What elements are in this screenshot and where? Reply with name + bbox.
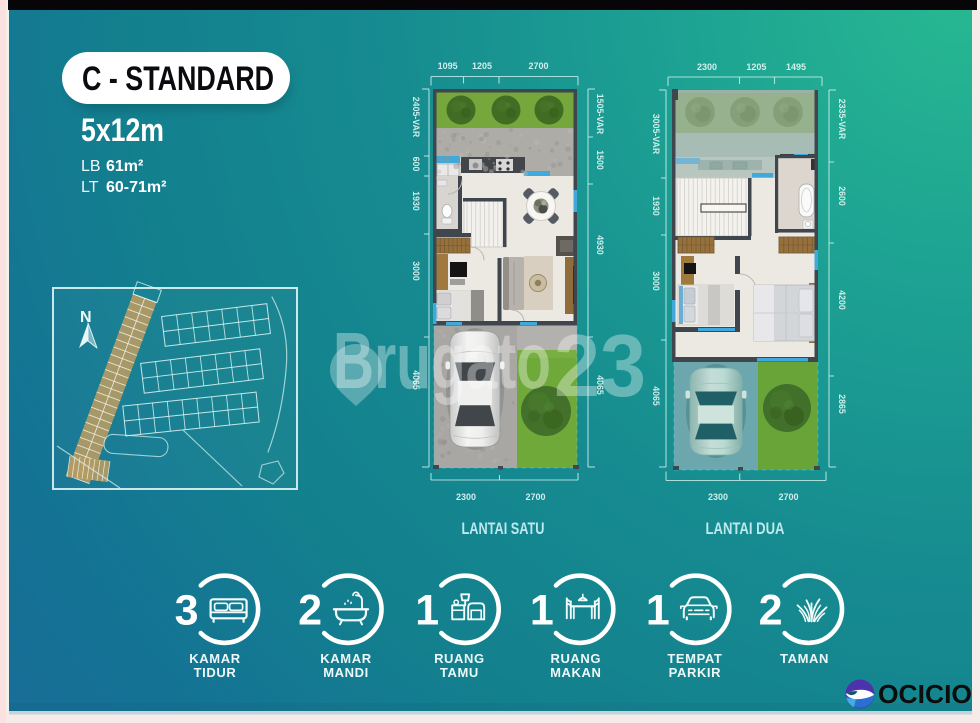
svg-text:1: 1 [530,587,554,635]
svg-text:2300: 2300 [697,62,717,72]
svg-text:Brugato: Brugato [333,316,551,405]
svg-text:1495: 1495 [786,62,806,72]
svg-text:2300: 2300 [456,492,476,502]
svg-text:2335-VAR: 2335-VAR [837,99,847,140]
svg-text:1095: 1095 [438,61,458,71]
svg-text:LB: LB [81,158,101,175]
svg-text:KAMAR: KAMAR [320,651,371,666]
svg-text:TIDUR: TIDUR [194,665,237,680]
svg-text:1930: 1930 [651,196,661,216]
svg-text:2405-VAR: 2405-VAR [411,97,421,138]
svg-text:OCICIO: OCICIO [878,679,972,709]
svg-text:2300: 2300 [708,492,728,502]
svg-text:3000: 3000 [411,261,421,281]
svg-text:61m²: 61m² [106,158,143,175]
svg-text:2700: 2700 [525,492,545,502]
svg-text:MANDI: MANDI [323,665,369,680]
svg-text:1500: 1500 [595,150,605,170]
svg-text:23: 23 [554,316,646,415]
svg-text:C - STANDARD: C - STANDARD [82,60,274,98]
svg-text:LT: LT [81,179,99,196]
svg-text:600: 600 [411,157,421,172]
svg-text:60-71m²: 60-71m² [106,179,166,196]
svg-text:2: 2 [759,587,783,635]
svg-text:2600: 2600 [837,186,847,206]
svg-text:3000: 3000 [651,271,661,291]
svg-text:LANTAI DUA: LANTAI DUA [706,519,785,538]
svg-text:3005-VAR: 3005-VAR [651,114,661,155]
svg-text:1: 1 [646,587,670,635]
svg-text:2700: 2700 [778,492,798,502]
svg-text:MAKAN: MAKAN [550,665,601,680]
svg-text:LANTAI SATU: LANTAI SATU [462,519,545,538]
svg-text:2865: 2865 [837,394,847,414]
svg-text:1205: 1205 [746,62,766,72]
svg-text:RUANG: RUANG [434,651,485,666]
svg-text:1: 1 [415,587,439,635]
svg-text:PARKIR: PARKIR [669,665,721,680]
svg-text:1930: 1930 [411,191,421,211]
svg-text:TAMAN: TAMAN [780,651,829,666]
svg-text:RUANG: RUANG [550,651,601,666]
svg-text:2: 2 [298,587,322,635]
svg-text:4200: 4200 [837,290,847,310]
svg-text:TEMPAT: TEMPAT [667,651,722,666]
svg-text:4930: 4930 [595,235,605,255]
svg-text:1505-VAR: 1505-VAR [595,94,605,135]
svg-text:TAMU: TAMU [440,665,479,680]
svg-text:3: 3 [175,587,199,635]
svg-text:5x12m: 5x12m [81,112,164,148]
svg-text:1205: 1205 [472,61,492,71]
svg-text:2700: 2700 [528,61,548,71]
svg-text:KAMAR: KAMAR [189,651,240,666]
svg-text:4065: 4065 [651,386,661,406]
svg-text:N: N [80,309,92,326]
